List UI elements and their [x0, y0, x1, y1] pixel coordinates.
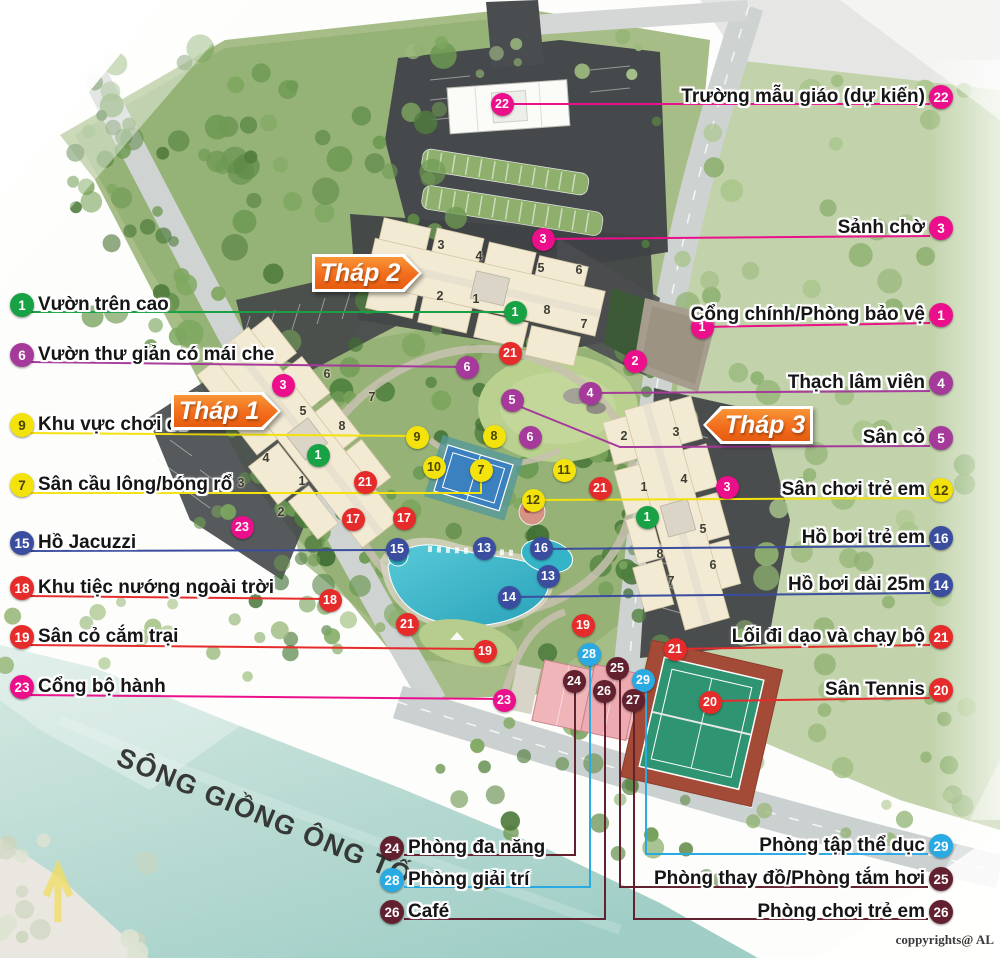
copyright-text: coppyrights@ AL: [896, 932, 994, 948]
tower-sign-label: Tháp 2: [312, 254, 422, 292]
tower-signs-layer: Tháp 2Tháp 1Tháp 3: [0, 0, 1000, 958]
tower-sign: Tháp 3: [703, 406, 813, 444]
tower-sign: Tháp 2: [312, 254, 422, 292]
site-plan: 345621876758431223415867 111223213323236…: [0, 0, 1000, 958]
tower-sign: Tháp 1: [171, 392, 281, 430]
tower-sign-label: Tháp 3: [703, 406, 813, 444]
tower-sign-label: Tháp 1: [171, 392, 281, 430]
